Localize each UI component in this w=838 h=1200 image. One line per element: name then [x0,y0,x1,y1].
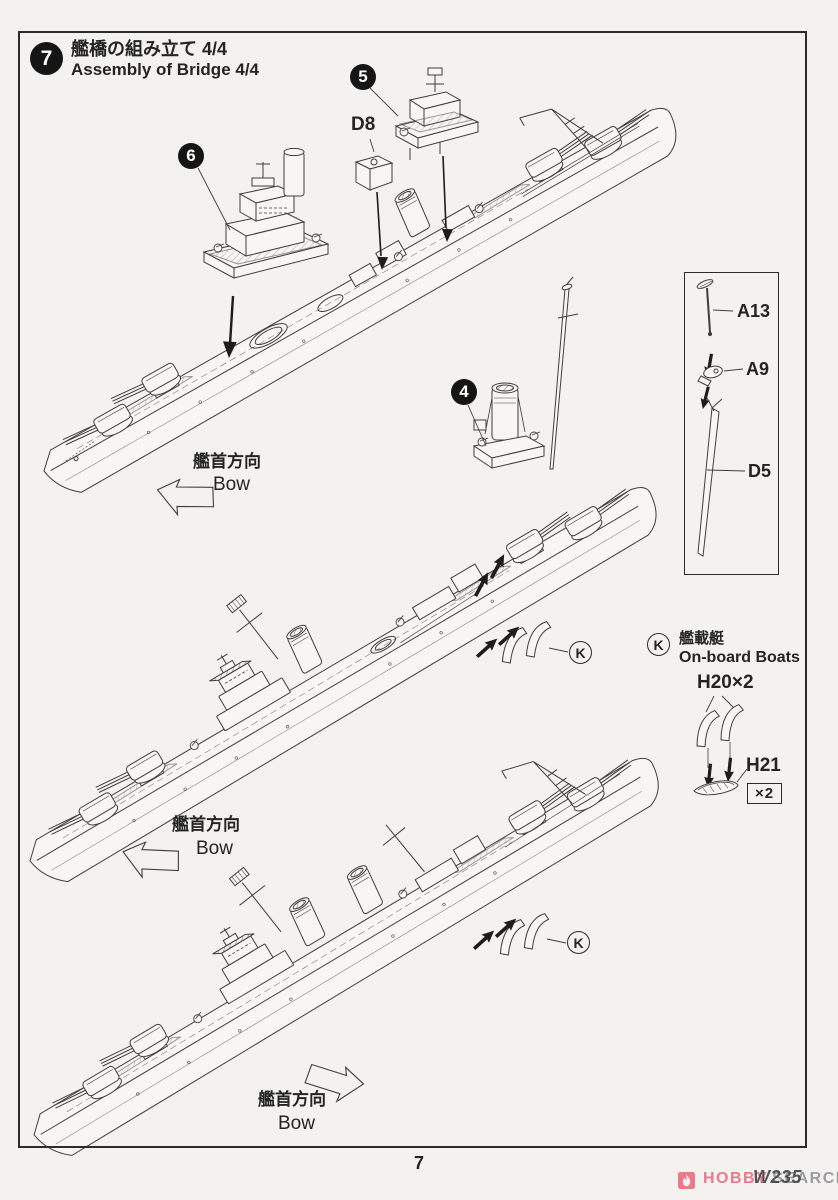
bow-label-ja-top: 艦首方向 [193,452,261,472]
bow-label-en-middle: Bow [196,838,233,860]
part-label-a9: A9 [746,359,769,380]
kit-code: W235 [753,1167,802,1188]
step-number-badge: 7 [30,42,63,75]
bow-label-en-top: Bow [213,474,250,496]
callout-badge-6: 6 [178,143,204,169]
k-callout-middle: K [569,641,592,664]
bow-label-en-bottom: Bow [278,1113,315,1135]
boats-legend-title-en: On-board Boats [679,649,800,667]
page-border [18,31,807,1148]
part-label-h21: H21 [746,755,781,777]
part-label-d8: D8 [351,114,375,136]
part-label-a13: A13 [737,301,770,322]
bow-label-ja-bottom: 艦首方向 [258,1090,326,1110]
part-label-d5: D5 [748,461,771,482]
bow-label-ja-middle: 艦首方向 [172,815,240,835]
boats-legend-title-ja: 艦載艇 [679,630,724,647]
callout-badge-4: 4 [451,379,477,405]
part-label-h20: H20×2 [697,672,754,694]
step-title-ja: 艦橋の組み立て 4/4 [71,39,227,60]
callout-badge-5: 5 [350,64,376,90]
instruction-page: 7 艦橋の組み立て 4/4 Assembly of Bridge 4/4 5 6… [0,0,838,1200]
h21-quantity-box: ×2 [747,783,782,804]
boats-legend-letter: K [647,633,670,656]
k-callout-bottom: K [567,931,590,954]
step-title-en: Assembly of Bridge 4/4 [71,60,259,80]
